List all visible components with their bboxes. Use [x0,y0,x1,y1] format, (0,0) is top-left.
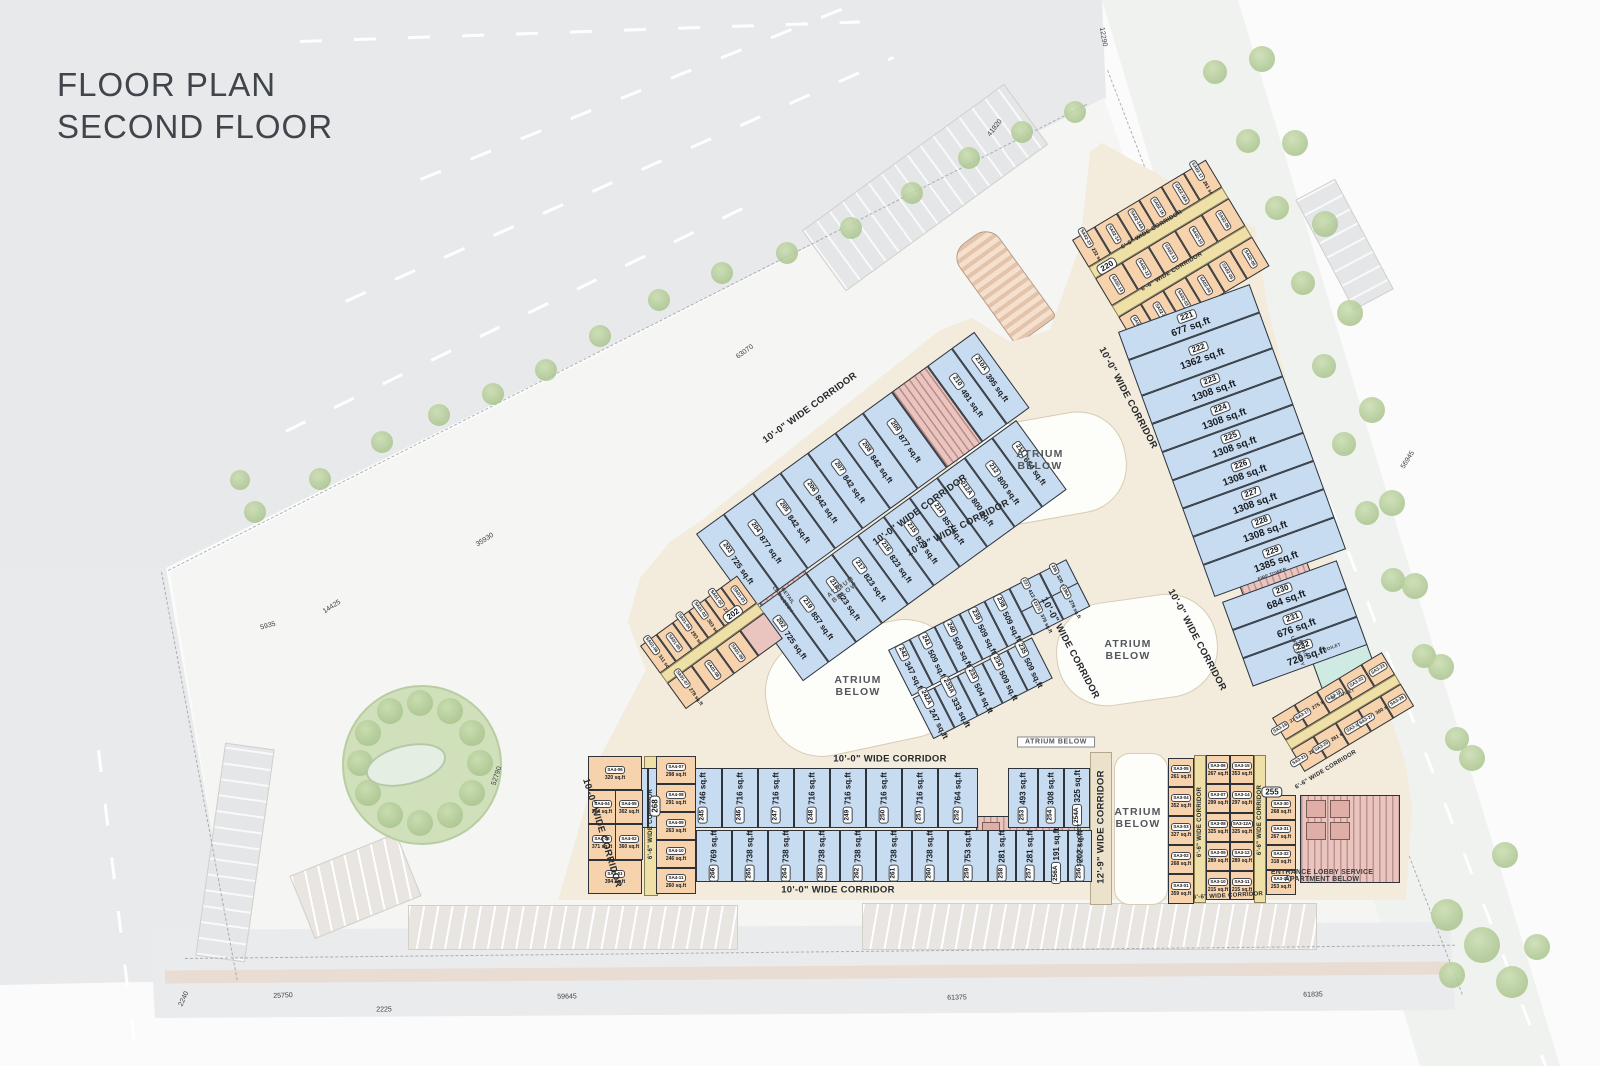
unit-number: 240 [943,618,960,638]
unit-area: 267 sq.ft [1208,771,1228,777]
unit-cell-254: 254308 sq.ft [1038,768,1064,828]
unit-label: 265738 sq.ft [745,830,755,881]
unit-number: SA4-10 [666,847,685,855]
unit-number: SA3-01 [1171,882,1190,890]
unit-number: SA4-06 [605,766,624,774]
unit-number: SA4-02 [619,835,638,843]
tree [230,470,250,490]
garden-tree [355,720,381,746]
unit-label: SA02-12 [1134,257,1152,280]
unit-label: SA3-14297 sq.ft [1232,791,1252,806]
corridor-label: 10'-0" WIDE CORRIDOR [833,754,947,765]
garden-tree [407,690,433,716]
atrium-below-label: ATRIUM BELOW [1114,806,1161,830]
unit-area: 716 sq.ft [736,772,745,804]
unit-cell-261: 261738 sq.ft [876,830,912,882]
unit-area: 509 sq.ft [1023,656,1046,689]
unit-area: 746 sq.ft [699,772,708,804]
unit-area: 738 sq.ft [890,830,899,862]
unit-area: 215 sq.ft [1208,887,1228,893]
unit-label: SA02-14A [1126,207,1146,233]
unit-number: 256A [1051,862,1061,884]
unit-cell-266: 266769 sq.ft [696,830,732,882]
unit-area: 842 sq.ft [814,493,840,525]
unit-label: SA3-07299 sq.ft [1208,791,1228,806]
tree [244,501,266,523]
tree [1524,934,1550,960]
unit-label: 263738 sq.ft [817,830,827,881]
page-title: FLOOR PLAN SECOND FLOOR [57,64,333,148]
unit-cell-SA3-30: SA3-30268 sq.ft [1266,795,1296,820]
unit-cell-SA3-32: SA3-32318 sq.ft [1266,845,1296,870]
unit-number: SA3-06 [1208,762,1227,770]
unit-area: 395 sq.ft [984,372,1010,404]
unit-cell-263: 263738 sq.ft [804,830,840,882]
unit-area: 359 sq.ft [1171,891,1191,897]
atrium-below-label: ATRIUM BELOW [1016,448,1063,472]
unit-label: SA4-08291 sq.ft [666,791,686,806]
unit-area: 716 sq.ft [772,772,781,804]
tree [1291,271,1315,295]
unit-cell-SA3-31: SA3-31267 sq.ft [1266,820,1296,845]
unit-number: 249 [843,807,853,824]
unit-label: SA3-32318 sq.ft [1271,850,1291,865]
unit-area: 268 sq.ft [1271,809,1291,815]
dimension-label: 61375 [947,994,967,1001]
unit-label: SA4-06320 sq.ft [605,766,625,781]
unit-number: SA4-07 [666,763,685,771]
unit-number: SA3-15 [1232,762,1251,770]
unit-area: 308 sq.ft [1047,772,1056,804]
unit-cell-SA4-07: SA4-07298 sq.ft [656,756,696,784]
atrium-below-label: ATRIUM BELOW [1104,638,1151,662]
unit-cell-SA3-02: SA3-02268 sq.ft [1168,845,1194,874]
unit-number: SA02-06 [1241,247,1259,270]
unit-cell-257: 257281 sq.ft [1016,830,1044,882]
atrium-below-label: ATRIUM BELOW [1017,737,1095,748]
unit-cell-259: 259753 sq.ft [948,830,988,882]
unit-number: 257 [1025,865,1035,882]
unit-area: 509 sq.ft [1001,610,1024,643]
unit-cell-250: 250716 sq.ft [866,768,902,828]
dimension-label: 2225 [376,1007,392,1014]
unit-number: 233A [939,675,958,699]
tree [1402,573,1428,599]
unit-area: 738 sq.ft [782,830,791,862]
unit-number: 210A [970,352,991,375]
unit-area: 491 sq.ft [960,387,986,419]
unit-area: 318 sq.ft [1271,859,1291,865]
unit-label: 262738 sq.ft [853,830,863,881]
unit-area: 325 sq.ft [1208,829,1228,835]
unit-area: 289 sq.ft [1232,858,1252,864]
unit-number: 236 [1048,561,1060,575]
unit-cell-260: 260738 sq.ft [912,830,948,882]
unit-number: SA4-11 [666,874,685,882]
unit-area: 289 sq.ft [1208,858,1228,864]
unit-area: 325 sq.ft [1232,829,1252,835]
unit-label: SA02-09 [1214,209,1232,232]
unit-number-badge: 255 [1261,787,1282,798]
unit-label: SA3-12A325 sq.ft [1231,820,1254,835]
unit-area: 261 sq.ft [1171,774,1191,780]
tree [1359,397,1385,423]
unit-number: SA3-05 [1171,765,1190,773]
unit-number: 265 [745,865,755,882]
unit-label: 254308 sq.ft [1046,772,1056,823]
unit-area: 353 sq.ft [1232,771,1252,777]
room-label: ENTRANCE LOBBY SERVICE APARTMENT BELOW [1271,869,1373,883]
tree [535,359,557,381]
unit-number: SA02-16 [1149,195,1167,218]
unit-number: 250 [879,807,889,824]
unit-label: SA3-01359 sq.ft [1171,882,1191,897]
unit-number: SA02-10 [1187,225,1205,248]
unit-cell-253: 253493 sq.ft [1008,768,1038,828]
unit-number: SA4-05 [619,800,638,808]
unit-label: SA3-05261 sq.ft [1171,765,1191,780]
unit-number: 263 [817,865,827,882]
unit-area: 299 sq.ft [1208,800,1228,806]
unit-area: 753 sq.ft [964,830,973,862]
unit-cell-SA3-14: SA3-14297 sq.ft [1230,784,1254,813]
tree [1282,130,1308,156]
lift-shaft [1330,800,1350,818]
unit-number: 261 [889,865,899,882]
tree [1236,129,1260,153]
unit-cell-SA4-10: SA4-10246 sq.ft [656,840,696,868]
unit-area: 716 sq.ft [880,772,889,804]
unit-cell-SA3-01: SA3-01359 sq.ft [1168,874,1194,904]
unit-label: 236A278 sq.ft [1059,583,1083,620]
unit-number: 260 [925,865,935,882]
garden-tree [407,810,433,836]
unit-label: 248716 sq.ft [807,772,817,823]
unit-cell-SA3-12A: SA3-12A325 sq.ft [1230,813,1254,842]
unit-number: 254 [1046,807,1056,824]
unit-number: SA02-14A [1126,207,1146,233]
unit-cell-SA4-02: SA4-02360 sq.ft [615,824,643,860]
unit-area: 320 sq.ft [605,775,625,781]
unit-number: 246 [735,807,745,824]
unit-area: 504 sq.ft [973,681,996,714]
tree [1464,927,1500,963]
unit-number: SA3-32 [1271,850,1290,858]
unit-area: 877 sq.ft [758,533,784,565]
unit-number: SA01-09 [727,641,746,663]
unit-number: 237 [1019,576,1031,590]
unit-area: 716 sq.ft [808,772,817,804]
unit-cell-264: 264738 sq.ft [768,830,804,882]
unit-area: 278 sq.ft [1067,598,1082,619]
unit-cell-SA4-05: SA4-05302 sq.ft [615,790,643,824]
unit-area: 327 sq.ft [1171,832,1191,838]
garden-tree [377,698,403,724]
unit-number: 264 [781,865,791,882]
unit-label: SA01-01 [729,584,748,606]
unit-number: 258 [997,865,1007,882]
unit-label: 251716 sq.ft [915,772,925,823]
unit-number: SA02-12 [1134,257,1152,280]
unit-label: 252764 sq.ft [953,772,963,823]
tree [1312,211,1338,237]
unit-label: SA4-09263 sq.ft [666,819,686,834]
unit-number: SA3-04 [1171,794,1190,802]
tree [648,289,670,311]
unit-area: 253 sq.ft [1271,884,1291,890]
unit-area: 268 sq.ft [1171,861,1191,867]
unit-area: 263 sq.ft [666,828,686,834]
parking-stalls [862,903,1317,950]
unit-label: 254A325 sq.ft [1072,770,1082,826]
unit-number: 236A [1059,583,1073,600]
unit-number: SA3-23 [1368,661,1389,678]
unit-number: 245 [698,807,708,824]
unit-number: 262 [853,865,863,882]
garden-tree [437,698,463,724]
unit-number: SA01-01 [729,584,748,606]
unit-number: SA02-15 [1077,226,1095,249]
unit-label: SA02-16A [1171,181,1191,207]
unit-number: SA3-10 [1208,878,1227,886]
unit-label: 247716 sq.ft [771,772,781,823]
unit-label: SA4-07298 sq.ft [666,763,686,778]
unit-number-badge: 268 [650,795,661,816]
unit-cell-262: 262738 sq.ft [840,830,876,882]
unit-number: SA02-05 [1218,260,1236,283]
tree [1459,745,1485,771]
unit-label: SA02-16 [1149,195,1167,218]
unit-number: SA02-17 [1188,159,1206,182]
lift-shaft [1306,822,1326,840]
unit-number: 259 [963,865,973,882]
unit-area: 716 sq.ft [844,772,853,804]
unit-cell-SA3-03: SA3-03327 sq.ft [1168,816,1194,845]
unit-label: SA02-06 [1241,247,1259,270]
unit-number: 234 [989,652,1006,672]
unit-number: SA02-14 [1105,222,1123,245]
dimension-label: 56945 [1400,450,1416,470]
unit-number: 239 [967,605,984,625]
unit-number: SA01-07 [672,667,691,689]
unit-number: 266 [709,865,719,882]
unit-number: 242A [916,686,935,710]
unit-label: SA4-02360 sq.ft [619,835,639,850]
unit-number: SA3-08 [1208,820,1227,828]
unit-number: SA3-12A [1231,820,1254,828]
unit-label: SA3-23 [1368,661,1389,678]
unit-number: SA02-13 [1108,273,1126,296]
unit-area: 509 sq.ft [976,622,999,655]
unit-area: 191 sq.ft [1052,828,1061,860]
atrium-below-label: ATRIUM BELOW [834,674,881,698]
dimension-label: 61835 [1303,991,1323,998]
unit-label: SA02-14 [1105,222,1123,245]
unit-number: SA4-09 [666,819,685,827]
unit-area: 360 sq.ft [619,844,639,850]
unit-label: SA3-31267 sq.ft [1271,825,1291,840]
unit-area: 842 sq.ft [869,453,895,485]
unit-area: 842 sq.ft [841,473,867,505]
unit-number: SA3-03 [1171,823,1190,831]
garden-tree [377,802,403,828]
unit-area: 823 sq.ft [862,571,888,603]
unit-cell-SA3-07: SA3-07299 sq.ft [1206,784,1230,813]
unit-area: 738 sq.ft [818,830,827,862]
title-line-1: FLOOR PLAN [57,64,333,106]
unit-label: SA3-30268 sq.ft [1271,800,1291,815]
tree [1439,962,1465,988]
unit-label: SA01-09 [727,641,746,663]
unit-number: SA3-14 [1232,791,1251,799]
garden-tree [467,750,493,776]
parking-stalls [408,905,738,950]
unit-label: 256A191 sq.ft [1051,828,1061,884]
unit-number: SA01-08 [703,659,722,681]
unit-label: 259753 sq.ft [963,830,973,881]
unit-number: SA3-07 [1208,791,1227,799]
unit-cell-246: 246716 sq.ft [722,768,758,828]
unit-number: SA02-09 [1214,209,1232,232]
unit-cell-SA3-06: SA3-06267 sq.ft [1206,755,1230,784]
unit-cell-SA4-06: SA4-06320 sq.ft [588,756,642,790]
unit-area: 325 sq.ft [1073,770,1082,802]
unit-number: 241 [918,631,935,651]
unit-number: 256 [1075,865,1085,882]
dimension-label: 59645 [557,993,577,1000]
unit-area: 278 sq.ft [687,687,704,707]
unit-label: SA02-05 [1218,260,1236,283]
unit-cell-SA3-08: SA3-08325 sq.ft [1206,813,1230,842]
unit-label: SA02-13 [1108,273,1126,296]
tree [958,147,980,169]
garden-tree [459,780,485,806]
unit-label: SA02-11 [1161,241,1179,264]
unit-number: 235 [1014,639,1031,659]
unit-number: SA4-08 [666,791,685,799]
unit-label: SA3-11215 sq.ft [1232,878,1252,893]
unit-label: 264738 sq.ft [781,830,791,881]
unit-area: 260 sq.ft [666,883,686,889]
unit-cell-SA3-15: SA3-15353 sq.ft [1230,755,1254,784]
unit-label: SA3-03327 sq.ft [1171,823,1191,838]
unit-label: 253493 sq.ft [1018,772,1028,823]
unit-area: 493 sq.ft [1019,772,1028,804]
unit-area: 281 sq.ft [998,830,1007,862]
unit-cell-SA3-04: SA3-04352 sq.ft [1168,787,1194,816]
unit-number: 248 [807,807,817,824]
unit-label: SA3-28 [1387,693,1408,710]
unit-area: 509 sq.ft [952,635,975,668]
unit-label: 266769 sq.ft [709,830,719,881]
unit-area: 842 sq.ft [786,513,812,545]
unit-number: SA02-16A [1171,181,1191,207]
tree [428,404,450,426]
tree [1492,842,1518,868]
unit-label: 258281 sq.ft [997,830,1007,881]
unit-area: 738 sq.ft [926,830,935,862]
unit-area: 302 sq.ft [619,809,639,815]
unit-cell-265: 265738 sq.ft [732,830,768,882]
unit-label: SA3-10215 sq.ft [1208,878,1228,893]
unit-label: SA3-06267 sq.ft [1208,762,1228,777]
unit-label: SA02-10 [1187,225,1205,248]
lift-shaft [1330,822,1350,840]
unit-area: 877 sq.ft [897,432,923,464]
tree [1379,490,1405,516]
unit-label: 245746 sq.ft [698,772,708,823]
unit-number: SA02-04 [1196,273,1214,296]
unit-cell-254A: 254A325 sq.ft [1064,768,1090,828]
unit-area: 267 sq.ft [1271,834,1291,840]
unit-label: SA3-08325 sq.ft [1208,820,1228,835]
tree [1312,354,1336,378]
lift-shaft [1306,800,1326,818]
unit-number: 233 [964,664,981,684]
unit-cell-252: 252764 sq.ft [938,768,978,828]
unit-label: SA3-09289 sq.ft [1208,849,1228,864]
unit-area: 769 sq.ft [710,830,719,862]
unit-cell-SA3-09: SA3-09289 sq.ft [1206,842,1230,871]
unit-cell-258: 258281 sq.ft [988,830,1016,882]
unit-number: 247 [771,807,781,824]
unit-cell-249: 249716 sq.ft [830,768,866,828]
unit-number: 238 [992,593,1009,613]
unit-area: 738 sq.ft [854,830,863,862]
unit-area: 716 sq.ft [916,772,925,804]
unit-label: SA3-02268 sq.ft [1171,852,1191,867]
unit-number: SA02-11 [1161,241,1179,264]
unit-area: 298 sq.ft [666,772,686,778]
unit-label: SA4-11260 sq.ft [666,874,686,889]
tree [309,468,331,490]
unit-area: 764 sq.ft [954,772,963,804]
unit-cell-247: 247716 sq.ft [758,768,794,828]
unit-area: 738 sq.ft [746,830,755,862]
filler [978,768,1008,828]
title-line-2: SECOND FLOOR [57,106,333,148]
unit-label: 260738 sq.ft [925,830,935,881]
unit-label: SA4-05302 sq.ft [619,800,639,815]
tree [1249,46,1275,72]
unit-label: 257281 sq.ft [1025,830,1035,881]
unit-label: 250716 sq.ft [879,772,889,823]
unit-cell-248: 248716 sq.ft [794,768,830,828]
unit-number: SA3-31 [1271,825,1290,833]
corridor-label: 6'-6" WIDE CORRIDOR [1197,787,1203,857]
unit-number: 251 [915,807,925,824]
unit-label: 249716 sq.ft [843,772,853,823]
unit-number: SA3-28 [1387,693,1408,710]
tree [1496,966,1528,998]
unit-number: 242 [894,643,911,663]
unit-cell-251: 251716 sq.ft [902,768,938,828]
unit-label: SA02-04 [1196,273,1214,296]
floor-plan-canvas: 203725 sq.ft204877 sq.ft205842 sq.ft2068… [0,0,1600,1066]
unit-cell-SA4-09: SA4-09263 sq.ft [656,812,696,840]
unit-area: 725 sq.ft [783,629,809,661]
dimension-label: 25750 [273,992,293,1000]
tree [1337,300,1363,326]
unit-label: SA3-15353 sq.ft [1232,762,1252,777]
unit-number: SA3-02 [1171,852,1190,860]
unit-cell-256A: 256A191 sq.ft [1044,830,1068,882]
corridor-label: 10'-0" WIDE CORRIDOR [781,885,895,896]
unit-area: 281 sq.ft [1026,830,1035,862]
unit-cell-SA4-08: SA4-08291 sq.ft [656,784,696,812]
unit-label: SA3-04352 sq.ft [1171,794,1191,809]
unit-label: 246716 sq.ft [735,772,745,823]
